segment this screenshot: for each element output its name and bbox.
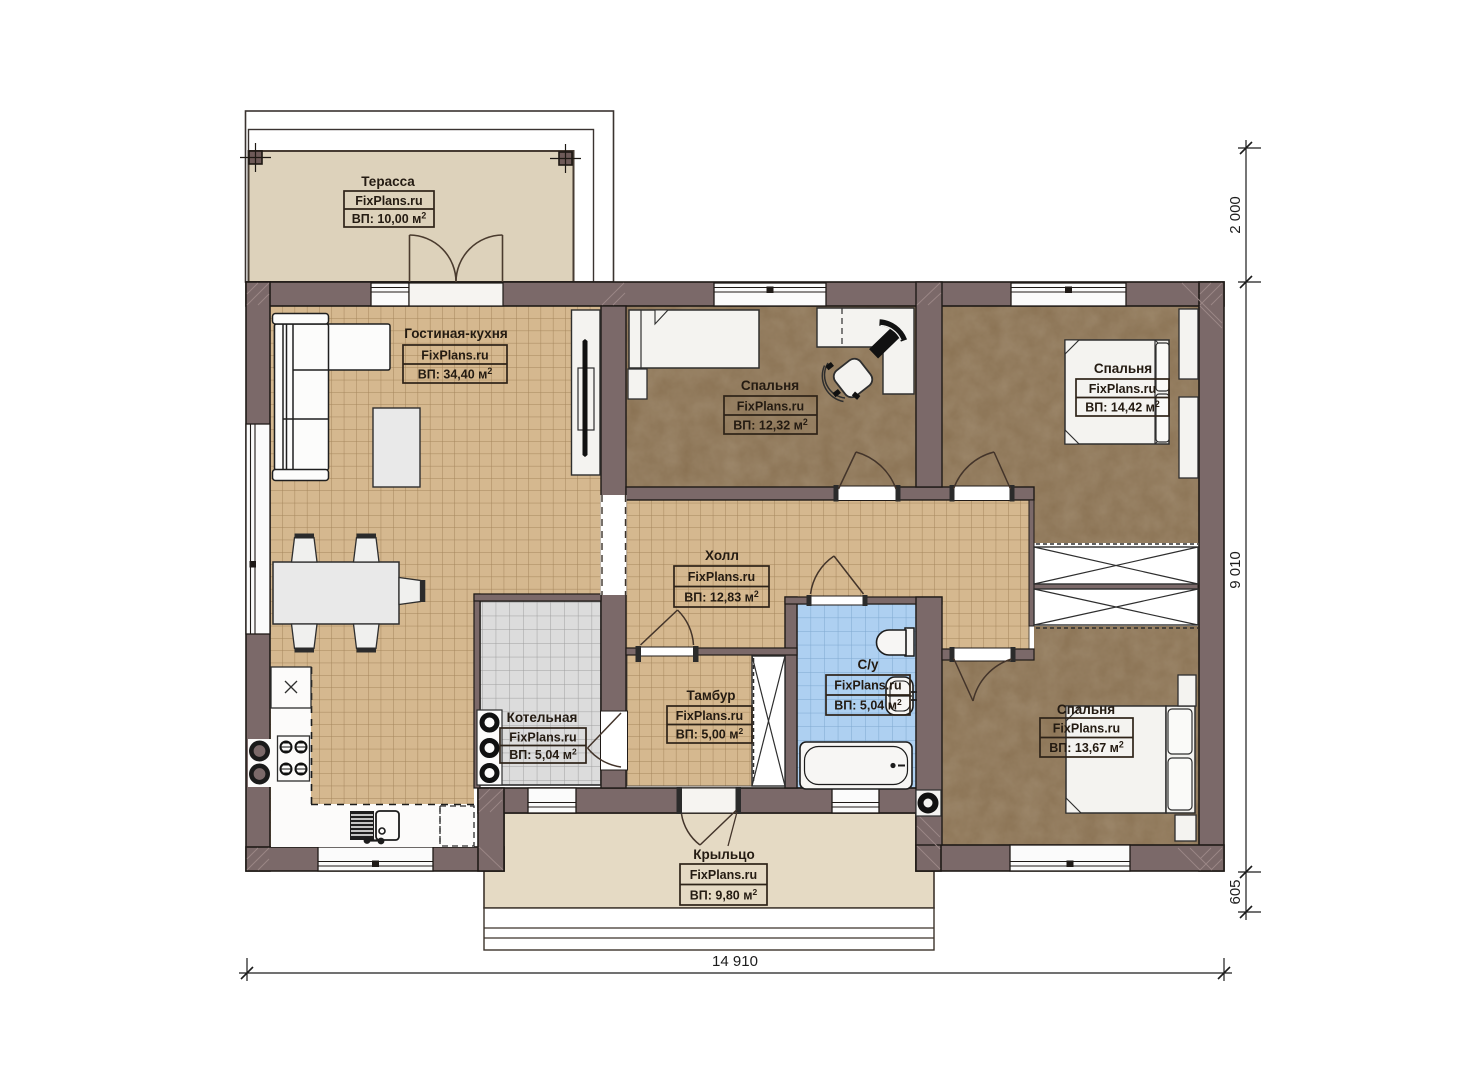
- svg-text:9 010: 9 010: [1227, 551, 1244, 589]
- svg-text:Терасса: Терасса: [361, 174, 415, 189]
- svg-text:Спальня: Спальня: [1094, 361, 1152, 376]
- svg-text:ВП: 13,67 м2: ВП: 13,67 м2: [1049, 740, 1124, 756]
- svg-text:FixPlans.ru: FixPlans.ru: [688, 570, 755, 584]
- svg-text:605: 605: [1227, 879, 1244, 904]
- svg-text:ВП: 5,04 м2: ВП: 5,04 м2: [834, 697, 902, 713]
- svg-text:FixPlans.ru: FixPlans.ru: [421, 348, 488, 362]
- svg-text:Гостиная-кухня: Гостиная-кухня: [404, 326, 507, 341]
- svg-text:14 910: 14 910: [712, 953, 758, 970]
- svg-text:FixPlans.ru: FixPlans.ru: [834, 679, 901, 693]
- svg-text:FixPlans.ru: FixPlans.ru: [690, 868, 757, 882]
- svg-text:ВП: 10,00 м2: ВП: 10,00 м2: [352, 210, 427, 226]
- svg-text:ВП: 34,40 м2: ВП: 34,40 м2: [418, 366, 493, 382]
- svg-text:ВП: 9,80 м2: ВП: 9,80 м2: [690, 887, 758, 903]
- svg-text:Крыльцо: Крыльцо: [693, 847, 754, 862]
- svg-text:ВП: 5,04 м2: ВП: 5,04 м2: [509, 746, 577, 762]
- svg-text:ВП: 14,42 м2: ВП: 14,42 м2: [1085, 399, 1160, 415]
- svg-text:Тамбур: Тамбур: [687, 688, 736, 703]
- svg-text:ВП: 12,32 м2: ВП: 12,32 м2: [733, 417, 808, 433]
- svg-text:ВП: 12,83 м2: ВП: 12,83 м2: [684, 589, 759, 605]
- svg-text:Спальня: Спальня: [741, 378, 799, 393]
- svg-text:Котельная: Котельная: [507, 710, 578, 725]
- svg-text:Спальня: Спальня: [1057, 702, 1115, 717]
- svg-text:FixPlans.ru: FixPlans.ru: [509, 730, 576, 744]
- svg-text:FixPlans.ru: FixPlans.ru: [1053, 722, 1120, 736]
- svg-text:С/у: С/у: [857, 657, 879, 672]
- svg-text:FixPlans.ru: FixPlans.ru: [676, 709, 743, 723]
- svg-text:ВП: 5,00 м2: ВП: 5,00 м2: [676, 726, 744, 742]
- svg-text:2 000: 2 000: [1227, 196, 1244, 234]
- svg-text:FixPlans.ru: FixPlans.ru: [355, 194, 422, 208]
- svg-text:Холл: Холл: [705, 548, 739, 563]
- svg-text:FixPlans.ru: FixPlans.ru: [737, 399, 804, 413]
- svg-text:FixPlans.ru: FixPlans.ru: [1089, 382, 1156, 396]
